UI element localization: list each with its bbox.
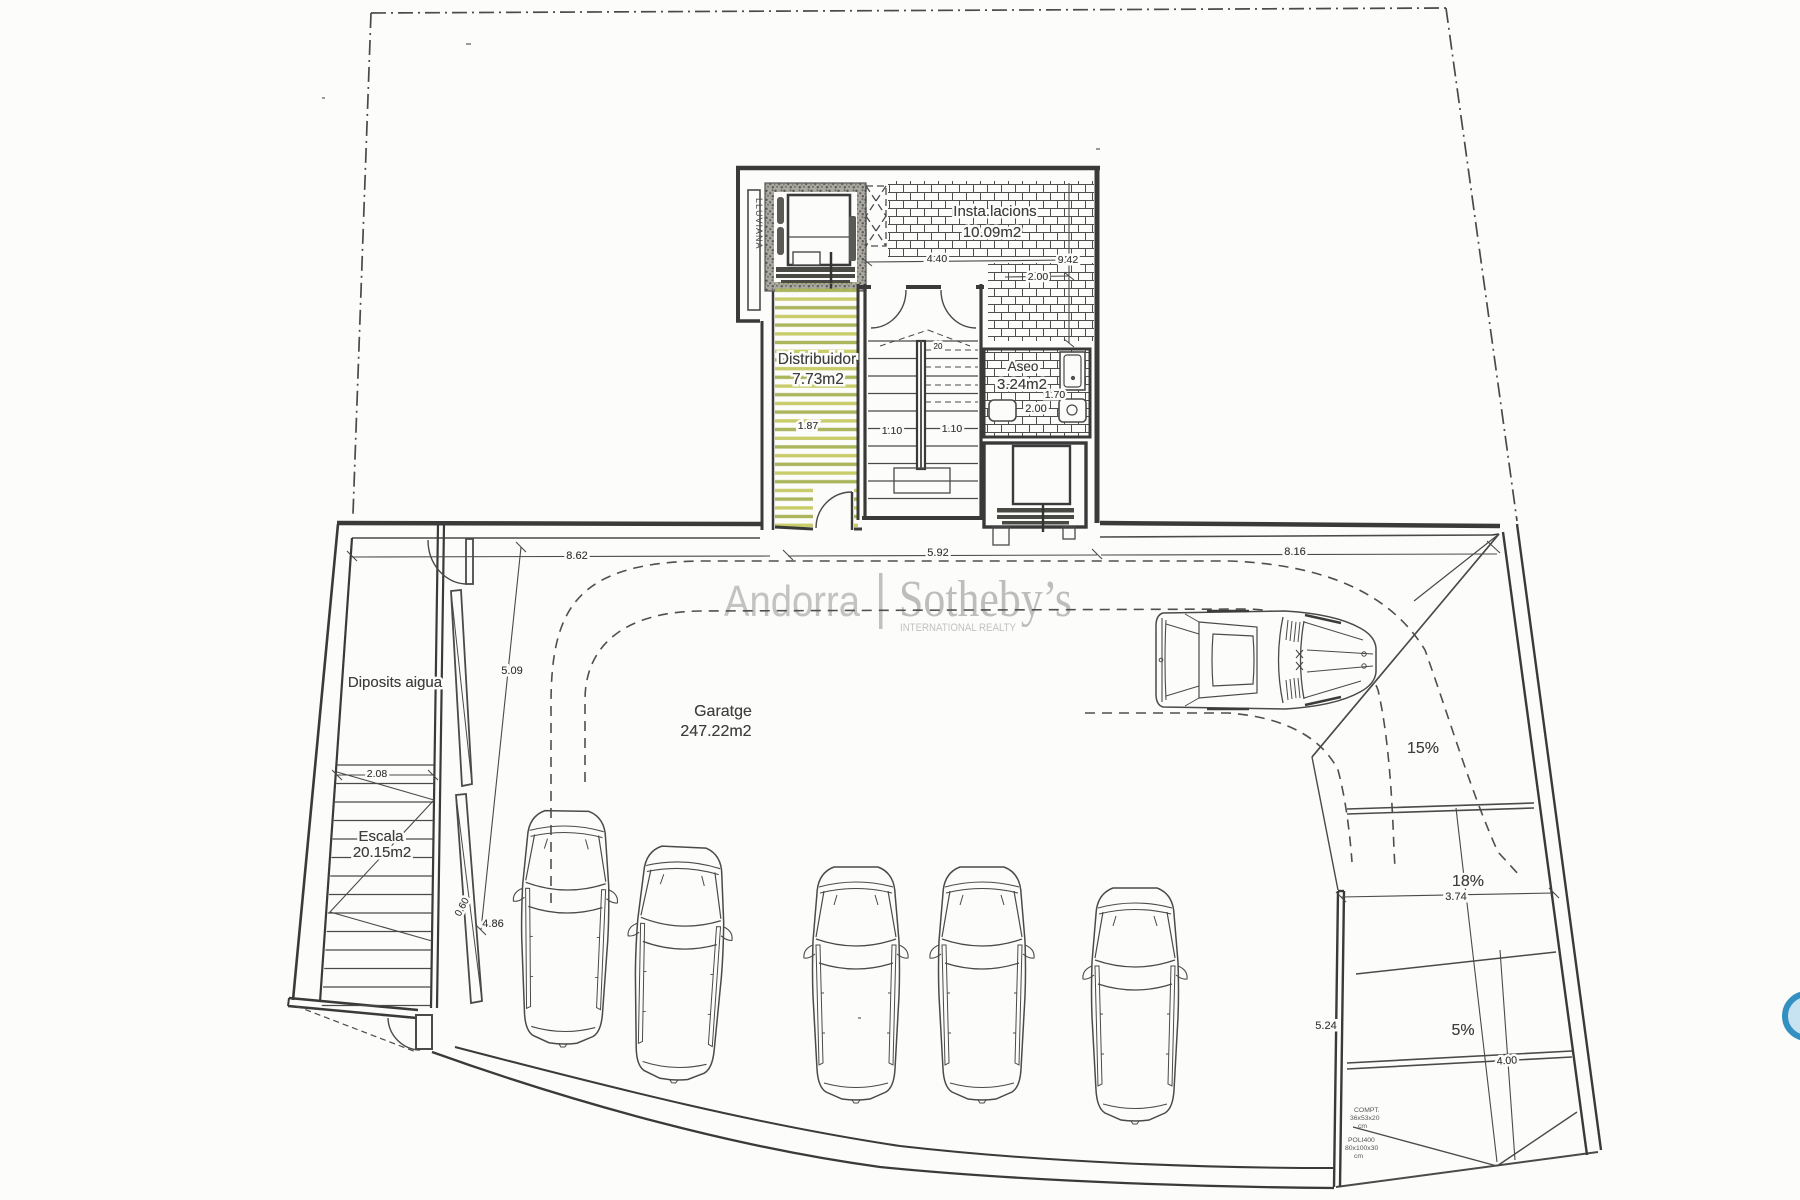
- svg-text:80x100x30: 80x100x30: [1345, 1145, 1378, 1152]
- svg-text:20.15m2: 20.15m2: [353, 844, 411, 861]
- svg-text:Diposits aigua: Diposits aigua: [348, 674, 443, 691]
- svg-text:2.00: 2.00: [1025, 403, 1046, 415]
- svg-text:1.10: 1.10: [942, 423, 963, 435]
- svg-text:4.00: 4.00: [1496, 1054, 1517, 1067]
- svg-text:POLI400: POLI400: [1348, 1137, 1375, 1144]
- svg-text:20: 20: [934, 342, 943, 351]
- svg-text:1.10: 1.10: [882, 425, 903, 437]
- svg-text:5.24: 5.24: [1315, 1020, 1336, 1032]
- svg-text:5%: 5%: [1451, 1022, 1474, 1039]
- svg-text:4.86: 4.86: [482, 918, 503, 930]
- svg-text:247.22m2: 247.22m2: [680, 723, 751, 740]
- svg-text:7.73m2: 7.73m2: [792, 371, 844, 388]
- svg-text:2.08: 2.08: [367, 768, 388, 780]
- svg-text:4.40: 4.40: [927, 253, 948, 265]
- svg-text:36x53x20: 36x53x20: [1350, 1115, 1380, 1122]
- svg-text:Insta.lacions: Insta.lacions: [953, 203, 1036, 220]
- svg-text:Garatge: Garatge: [694, 703, 752, 720]
- svg-text:LLUVIANA: LLUVIANA: [754, 198, 764, 250]
- svg-text:Aseo: Aseo: [1008, 359, 1039, 374]
- svg-text:COMPT.: COMPT.: [1354, 1107, 1380, 1114]
- svg-text:10.09m2: 10.09m2: [963, 224, 1021, 241]
- svg-text:INTERNATIONAL REALTY: INTERNATIONAL REALTY: [900, 622, 1017, 634]
- svg-text:5.09: 5.09: [501, 665, 522, 677]
- svg-text:Escala: Escala: [358, 828, 404, 845]
- svg-text:cm: cm: [1358, 1123, 1367, 1130]
- svg-text:1.70: 1.70: [1045, 389, 1066, 401]
- svg-text:Sotheby’s: Sotheby’s: [899, 571, 1072, 628]
- svg-text:3.74: 3.74: [1445, 891, 1466, 903]
- svg-text:Distribuidor: Distribuidor: [778, 351, 856, 368]
- svg-text:15%: 15%: [1407, 740, 1439, 757]
- svg-text:cm: cm: [1354, 1153, 1363, 1160]
- svg-text:Andorra: Andorra: [724, 577, 860, 626]
- svg-text:9.42: 9.42: [1058, 254, 1079, 266]
- svg-text:5.92: 5.92: [927, 547, 948, 559]
- svg-text:3.24m2: 3.24m2: [997, 376, 1047, 393]
- svg-text:8.62: 8.62: [566, 550, 587, 562]
- svg-text:2.00: 2.00: [1028, 271, 1049, 283]
- svg-text:1.87: 1.87: [798, 420, 819, 432]
- svg-text:8.16: 8.16: [1284, 546, 1305, 558]
- svg-text:18%: 18%: [1452, 873, 1484, 890]
